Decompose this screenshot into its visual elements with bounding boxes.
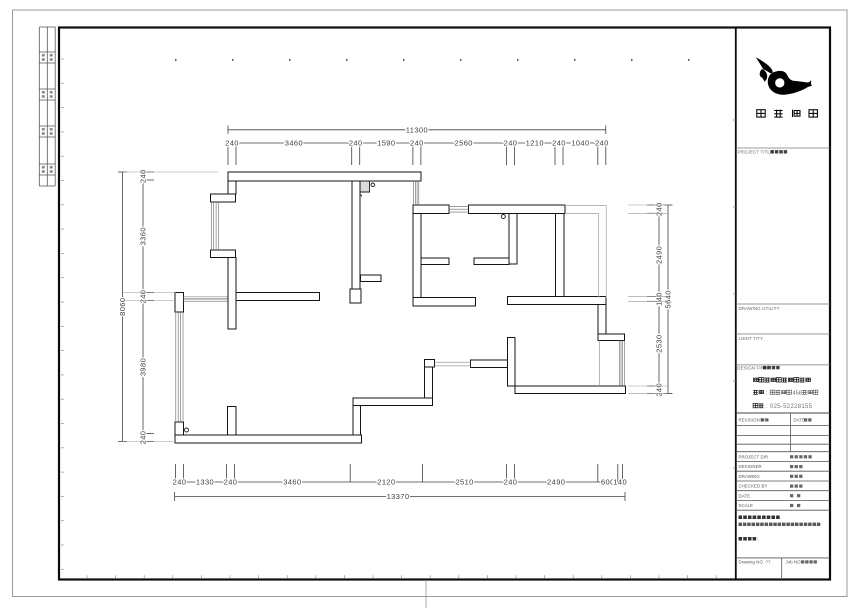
svg-text:SCALE: SCALE [739,503,754,508]
svg-text:240: 240 [138,431,147,445]
svg-text:2490: 2490 [654,246,663,264]
svg-text:240: 240 [504,139,518,148]
svg-text:PROJECT TITLE: PROJECT TITLE [738,150,774,155]
svg-text:DESIGNER: DESIGNER [739,464,762,469]
svg-text:3980: 3980 [138,358,147,376]
svg-text:DRAWING UTILITY: DRAWING UTILITY [739,306,780,311]
svg-text:240: 240 [225,139,239,148]
svg-text:240: 240 [552,139,566,148]
svg-text::: : [766,391,767,397]
svg-text:DATE: DATE [794,418,806,423]
svg-text:Drawing NO ??: Drawing NO ?? [739,560,771,565]
svg-text::: : [758,537,759,542]
svg-text:140: 140 [613,478,627,487]
svg-text:240: 240 [595,139,609,148]
svg-text:240: 240 [410,139,424,148]
svg-text:240: 240 [173,478,187,487]
svg-text:240: 240 [138,290,147,304]
svg-text:1590: 1590 [377,139,395,148]
svg-text:3460: 3460 [283,478,301,487]
svg-text:140: 140 [654,292,663,306]
svg-text:240: 240 [349,139,363,148]
svg-text:PROJECT DIR: PROJECT DIR [739,454,769,459]
svg-text:13370: 13370 [387,492,410,501]
svg-text:11300: 11300 [406,125,428,134]
svg-text:240: 240 [504,478,518,487]
svg-text:3460: 3460 [285,139,303,148]
svg-text:3360: 3360 [138,227,147,245]
svg-text:: 025-52228155: : 025-52228155 [766,404,813,410]
svg-text:CHECKED BY: CHECKED BY [739,484,768,489]
svg-text:458: 458 [793,391,803,397]
svg-text:2120: 2120 [377,478,395,487]
svg-text:240: 240 [654,202,663,216]
svg-text:240: 240 [654,383,663,397]
svg-text:1330: 1330 [196,478,214,487]
svg-text:2560: 2560 [455,139,473,148]
svg-text:2510: 2510 [455,478,473,487]
svg-text:LIENT TITY: LIENT TITY [739,336,764,341]
svg-text:1040: 1040 [571,139,589,148]
svg-text:Job NO: Job NO [786,560,802,565]
svg-text:240: 240 [138,169,147,183]
svg-text:DRAWING: DRAWING [739,474,761,479]
svg-text:2530: 2530 [654,334,663,352]
svg-text:2490: 2490 [547,478,565,487]
svg-text:1210: 1210 [526,139,544,148]
svg-text:REVISIONS: REVISIONS [739,418,763,423]
svg-text:5640: 5640 [663,290,672,308]
svg-text:240: 240 [224,478,238,487]
svg-text:DATE: DATE [739,493,751,498]
